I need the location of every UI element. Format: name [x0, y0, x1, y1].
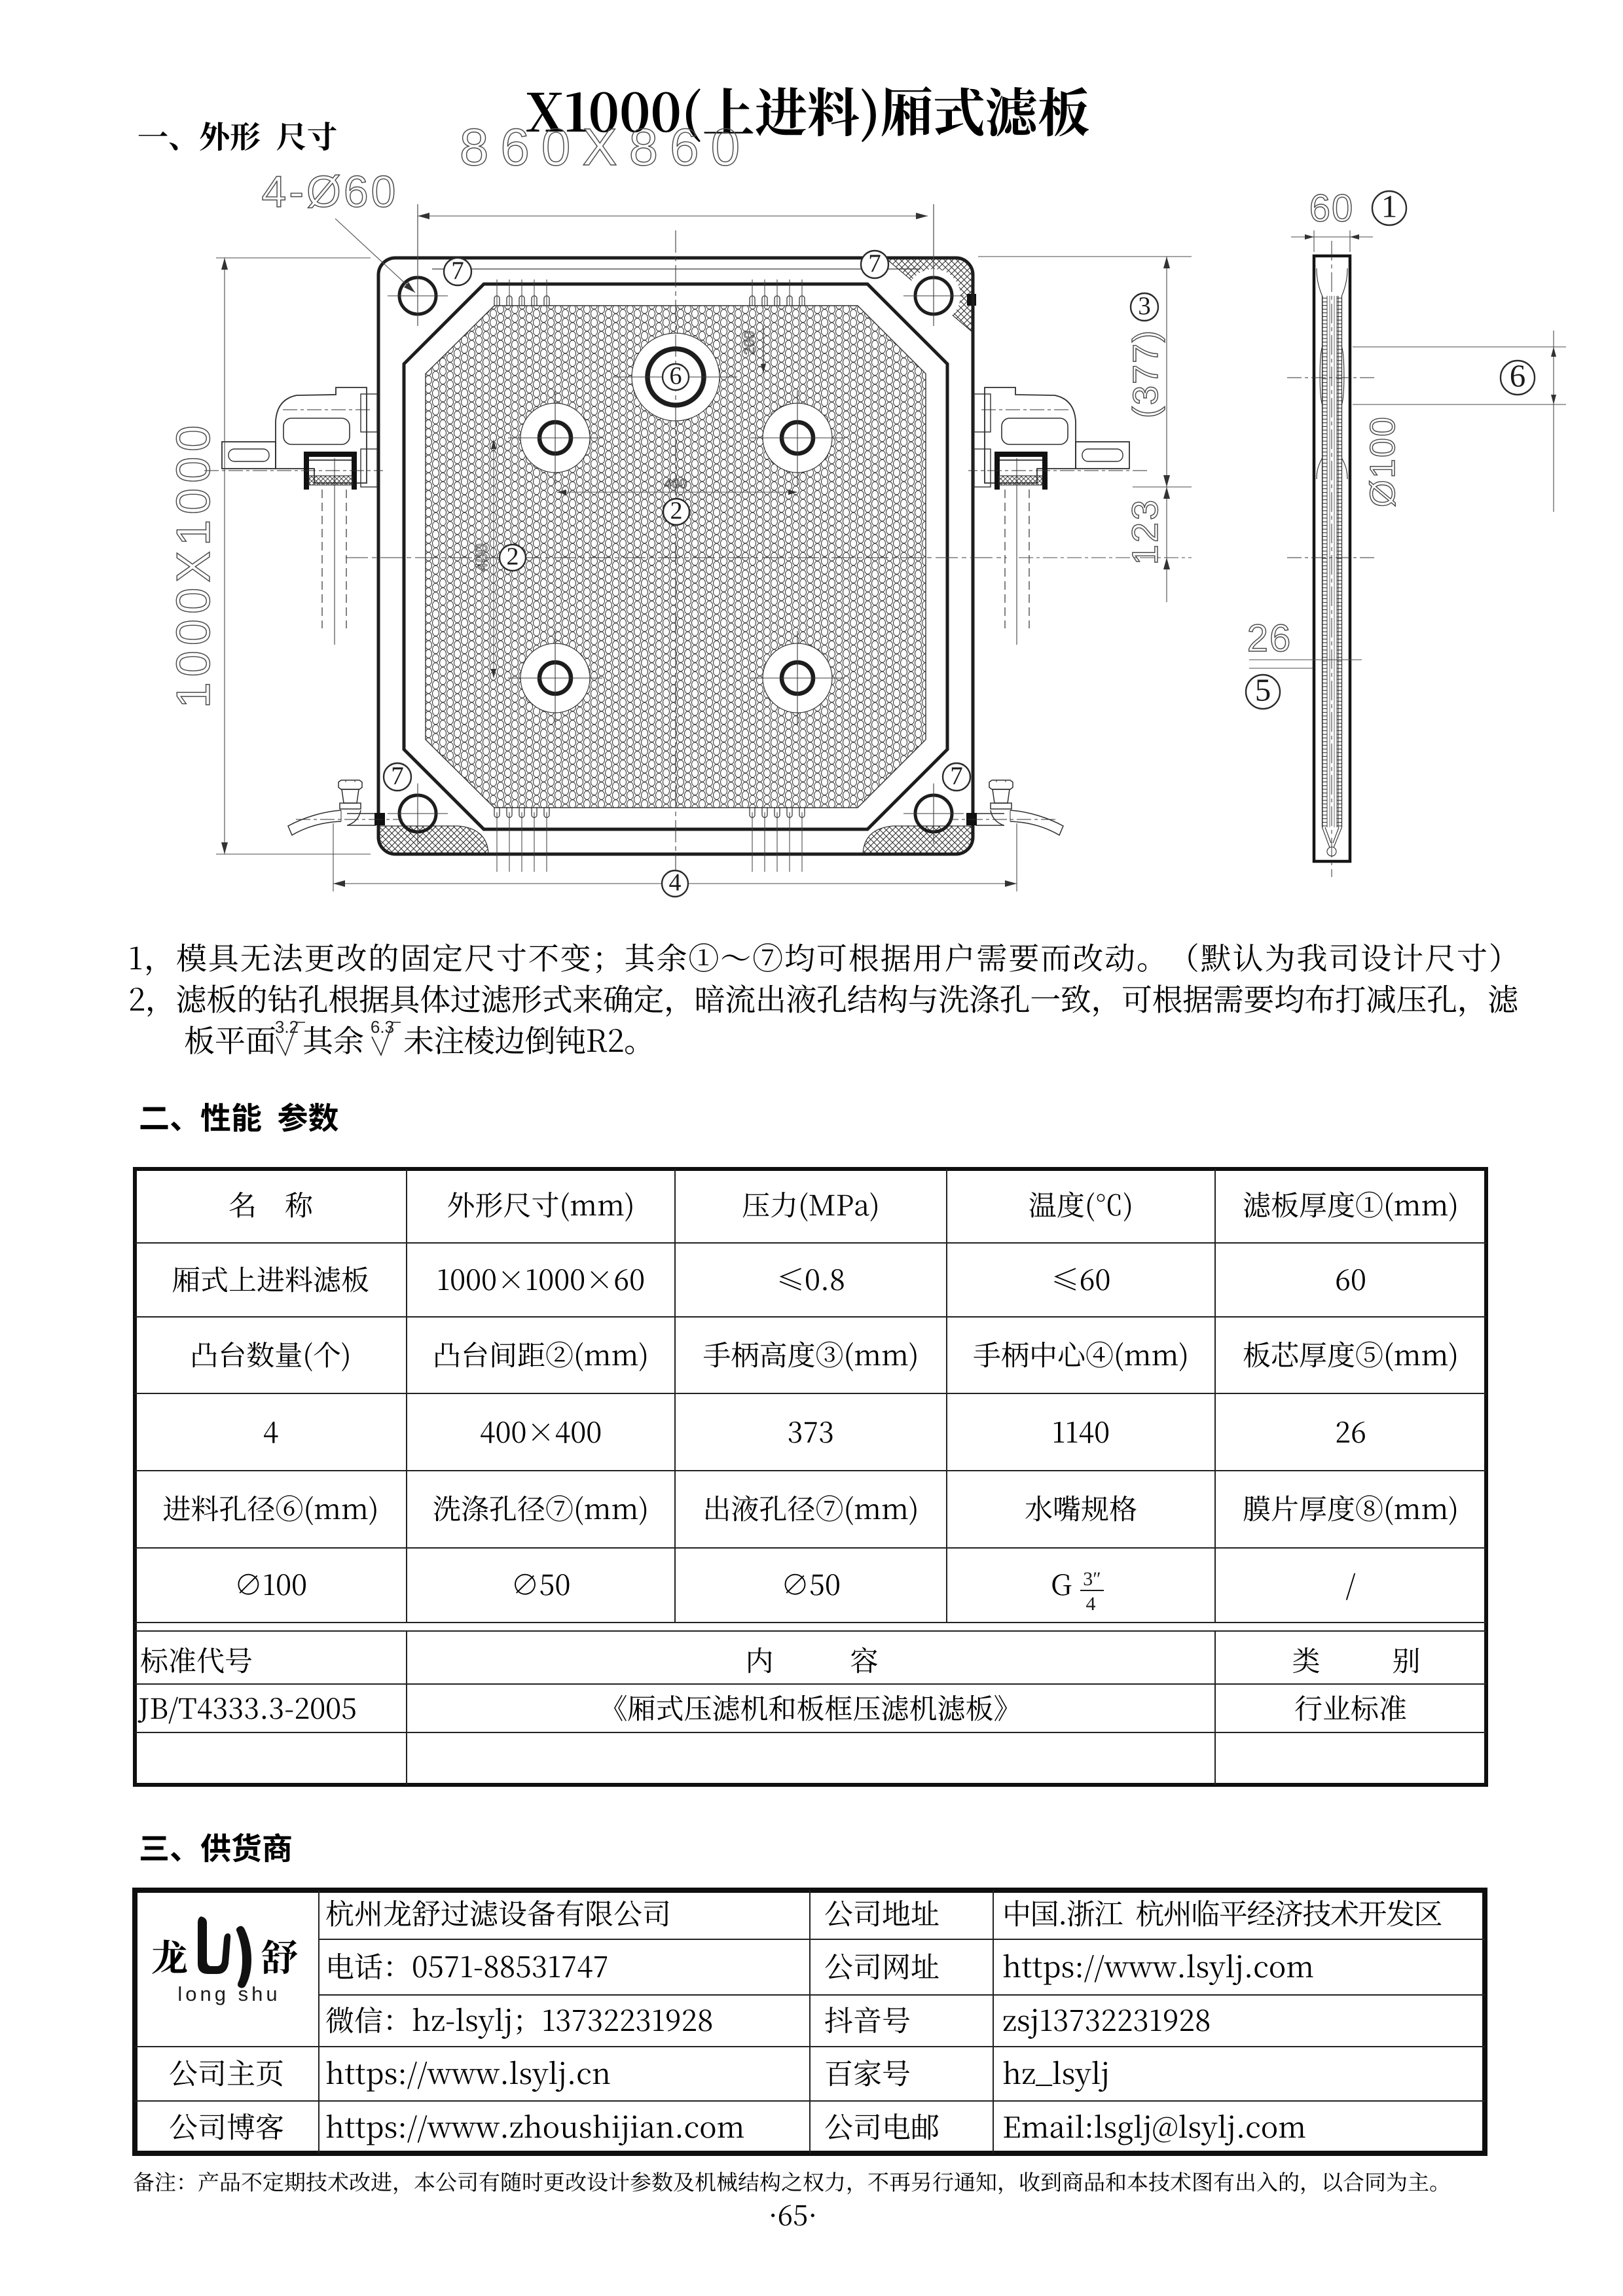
svg-text:200: 200 — [741, 331, 757, 355]
svg-text:6: 6 — [1510, 358, 1526, 394]
svg-text:123: 123 — [1124, 498, 1165, 565]
svg-text:3: 3 — [1138, 292, 1151, 320]
svg-text:long shu: long shu — [177, 1982, 280, 2005]
svg-text:400: 400 — [664, 476, 687, 492]
svg-text:60: 60 — [1309, 187, 1355, 230]
svg-text:(377): (377) — [1126, 329, 1165, 418]
svg-text:860X860: 860X860 — [460, 118, 752, 176]
svg-text:4-Ø60: 4-Ø60 — [262, 167, 399, 217]
svg-text:7: 7 — [868, 249, 881, 278]
svg-text:7: 7 — [391, 762, 404, 790]
svg-text:1: 1 — [1381, 188, 1398, 224]
svg-text:4: 4 — [1086, 1593, 1096, 1615]
svg-text:400: 400 — [471, 543, 491, 571]
svg-text:7: 7 — [451, 257, 464, 285]
svg-text:3″: 3″ — [1083, 1568, 1101, 1590]
svg-text:4: 4 — [669, 869, 682, 896]
svg-text:7: 7 — [950, 762, 963, 790]
svg-text:2: 2 — [507, 543, 519, 570]
svg-text:Ø100: Ø100 — [1363, 416, 1402, 507]
svg-text:5: 5 — [1255, 672, 1271, 708]
svg-text:1000X1000: 1000X1000 — [168, 420, 220, 708]
svg-text:6: 6 — [670, 362, 682, 389]
svg-text:26: 26 — [1247, 617, 1292, 660]
svg-text:2: 2 — [670, 497, 683, 524]
